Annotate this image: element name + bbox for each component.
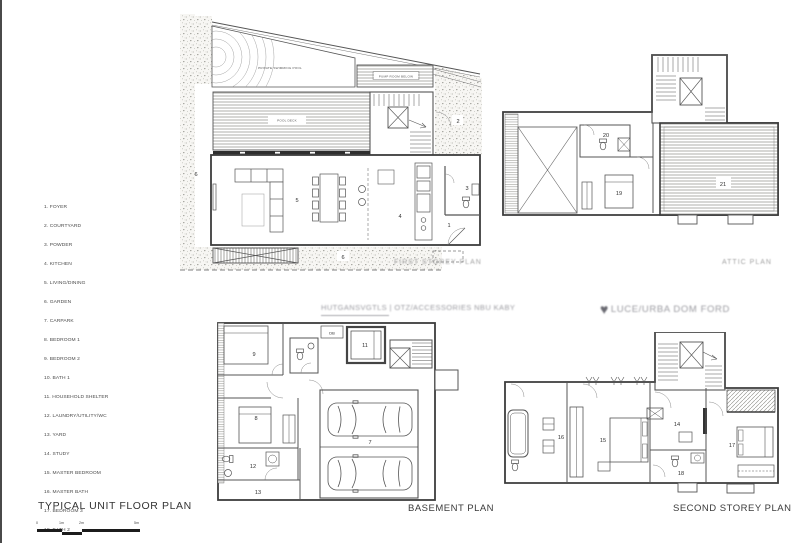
caption-second-storey: SECOND STOREY PLAN xyxy=(673,503,791,514)
basement-outline xyxy=(218,323,435,500)
legend-item: 11. HOUSEHOLD SHELTER xyxy=(44,395,108,401)
ramp xyxy=(213,248,298,263)
scale-segment xyxy=(37,529,62,532)
room-number-terrace: 21 xyxy=(720,182,726,188)
scale-tick: 1m xyxy=(59,521,64,525)
room-number-powder: 3 xyxy=(465,186,468,192)
legend-item: 5. LIVING/DINING xyxy=(44,281,108,287)
room-number-yard: 13 xyxy=(255,490,261,496)
legend-item: 1. FOYER xyxy=(44,205,108,211)
room-number-foyer: 1 xyxy=(447,223,450,229)
room-number-living: 5 xyxy=(295,198,298,204)
caption-basement: BASEMENT PLAN xyxy=(408,503,494,514)
ledge-tab xyxy=(727,484,754,493)
garden-stipple-topleft xyxy=(195,16,212,84)
glazed-wall xyxy=(213,151,370,154)
room-number-bedroom1: 8 xyxy=(254,416,257,422)
room-number-bath2: 18 xyxy=(678,471,684,477)
legend-item: 15. MASTER BEDROOM xyxy=(44,471,108,477)
room-number-masterbath: 16 xyxy=(558,435,564,441)
tv-console xyxy=(213,184,216,210)
second-storey-plan: 16 15 14 xyxy=(503,332,783,500)
room-number-study: 14 xyxy=(674,422,680,428)
pool-deck-label: POOL DECK xyxy=(277,119,297,123)
room-number-bedroom4: 19 xyxy=(616,191,622,197)
caption-attic: ATTIC PLAN xyxy=(722,259,772,266)
room-number-carpark: 7 xyxy=(368,440,371,446)
roof-terrace: 21 xyxy=(660,123,778,224)
scale-segment xyxy=(62,532,82,535)
courtyard-stipple xyxy=(435,66,482,155)
legend-item: 6. GARDEN xyxy=(44,300,108,306)
legend-item: 7. CARPARK xyxy=(44,319,108,325)
scale-tick: 5m xyxy=(134,521,139,525)
first-storey-plan: PRIVATE SWIMMING POOL PUMP ROOM BELOW PO… xyxy=(178,8,488,276)
basement-plan: 9 DB 11 xyxy=(213,318,461,510)
room-number-garden-b: 6 xyxy=(341,255,344,261)
attic-plan: 20 19 21 xyxy=(500,42,792,237)
room-number-kitchen: 4 xyxy=(398,214,401,220)
pump-room: PUMP ROOM BELOW xyxy=(357,65,433,87)
legend-item: 16. MASTER BATH xyxy=(44,490,108,496)
scale-bar: 0 1m 2m 5m xyxy=(36,521,146,537)
floor-plan-sheet: 1. FOYER 2. COURTYARD 3. POWDER 4. KITCH… xyxy=(0,0,800,543)
legend-item: 2. COURTYARD xyxy=(44,224,108,230)
ledge-tab xyxy=(678,483,697,492)
page-title: TYPICAL UNIT FLOOR PLAN xyxy=(38,500,192,512)
legend-item: 8. BEDROOM 1 xyxy=(44,338,108,344)
scale-tick: 2m xyxy=(79,521,84,525)
room-legend: 1. FOYER 2. COURTYARD 3. POWDER 4. KITCH… xyxy=(44,192,108,543)
db-label: DB xyxy=(329,330,335,335)
scale-segment xyxy=(82,529,140,532)
room-number-garden: 6 xyxy=(194,172,197,178)
garden-stipple-left xyxy=(180,14,195,270)
entry-stub xyxy=(435,370,458,390)
legend-item: 9. BEDROOM 2 xyxy=(44,357,108,363)
planter-strip xyxy=(505,114,518,213)
agent-watermark-left: HUTGANSVGTLS | OTZ/ACCESSORIES NBU KABY xyxy=(321,303,515,312)
agent-watermark-right: ♥LUCE/URBA DOM FORD xyxy=(600,301,730,317)
legend-item: 10. BATH 1 xyxy=(44,376,108,382)
room-number-laundry: 12 xyxy=(250,464,256,470)
room-number-masterbedroom: 15 xyxy=(600,438,606,444)
hatched-wall-strip xyxy=(218,323,224,483)
room-number-bath3: 20 xyxy=(603,133,609,139)
pool-deck: POOL DECK xyxy=(213,92,370,150)
scan-edge-line xyxy=(0,0,2,543)
caption-first-storey: FIRST STOREY PLAN xyxy=(394,259,482,266)
watermark-text: LUCE/URBA DOM FORD xyxy=(611,304,730,315)
balcony-trellis xyxy=(727,390,775,412)
legend-item: 4. KITCHEN xyxy=(44,262,108,268)
legend-item: 13. YARD xyxy=(44,433,108,439)
room-number-shelter: 11 xyxy=(362,343,368,349)
scale-tick: 0 xyxy=(36,521,38,525)
legend-item: 14. STUDY xyxy=(44,452,108,458)
legend-item: 12. LAUNDRY/UTILITY/WC xyxy=(44,414,108,420)
pool-label: PRIVATE SWIMMING POOL xyxy=(258,66,302,70)
room-number-bedroom2: 9 xyxy=(252,352,255,358)
legend-item: 3. POWDER xyxy=(44,243,108,249)
pump-room-label: PUMP ROOM BELOW xyxy=(379,74,413,78)
room-number-courtyard: 2 xyxy=(456,119,459,125)
stair-core xyxy=(370,92,433,155)
heart-icon: ♥ xyxy=(600,301,609,317)
watermark-underline xyxy=(321,315,389,316)
room-number-bedroom3: 17 xyxy=(729,443,735,449)
